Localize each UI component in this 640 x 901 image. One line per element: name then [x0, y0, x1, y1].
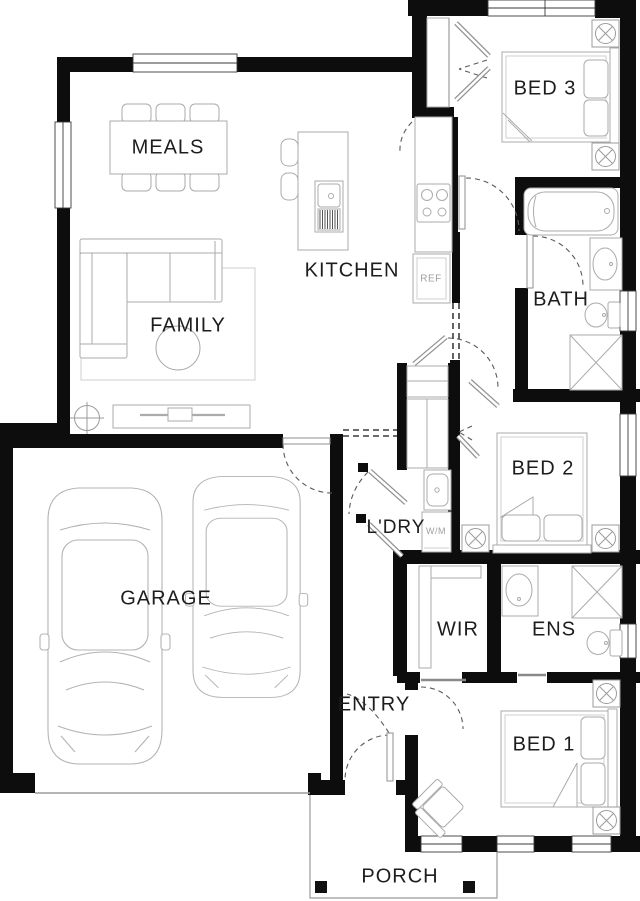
garage-cars: [40, 477, 308, 764]
room-label-wir: WIR: [437, 619, 479, 642]
kitchen-corner-arc: [400, 122, 412, 153]
bath-vanity: [590, 238, 622, 290]
window-bed2-right: [620, 414, 636, 476]
wir-shelves: [419, 566, 481, 668]
dishwasher-hatch: [318, 209, 340, 230]
room-label-laundry: L'DRY: [367, 517, 426, 539]
ens-vanity: [502, 566, 538, 616]
front-door-leaf: [387, 733, 393, 781]
garage-house-door-leaf: [283, 438, 330, 444]
ens-toilet: [587, 630, 622, 656]
wir-door-arc: [421, 687, 463, 729]
window-bed1-bottom-1: [421, 836, 462, 852]
room-label-bed1: BED 1: [513, 734, 576, 757]
room-label-family: FAMILY: [150, 315, 226, 338]
porch-post: [315, 881, 327, 893]
room-label-bed2: BED 2: [512, 458, 575, 481]
room-label-entry: ENTRY: [338, 694, 410, 717]
fridge-label: REF: [420, 274, 442, 285]
bed3-robe: [427, 18, 449, 107]
room-label-garage: GARAGE: [120, 588, 212, 611]
bath-door-leaf: [527, 233, 533, 288]
room-label-bath: BATH: [533, 289, 589, 312]
room-label-bed3: BED 3: [514, 78, 577, 101]
room-label-porch: PORCH: [361, 866, 438, 889]
ceiling-fan-symbol: [70, 402, 104, 434]
bed1-bed: [501, 709, 617, 809]
laundry-trough: [424, 470, 451, 510]
window-bed3-top: [488, 0, 595, 16]
bath-door-arc: [533, 236, 583, 286]
window-bath-right: [620, 291, 636, 331]
window-meals-left: [55, 122, 71, 208]
bed3-door-arc: [466, 178, 519, 231]
tv-unit: [113, 405, 250, 428]
porch-post: [463, 881, 475, 893]
room-label-kitchen: KITCHEN: [305, 260, 400, 283]
floor-plan-drawing: [0, 0, 640, 901]
ens-shower: [572, 566, 622, 618]
cooktop: [417, 184, 450, 222]
floor-plan-page: MEALS KITCHEN FAMILY BED 3 BATH BED 2 L'…: [0, 0, 640, 901]
laundry-door-arc: [349, 472, 368, 514]
bath-toilet: [585, 302, 620, 328]
room-label-ens: ENS: [532, 619, 576, 642]
front-door-arc: [345, 735, 390, 780]
bed3-door-leaf: [459, 176, 465, 229]
washing-machine-label: W/M: [426, 526, 446, 536]
bath-shower: [570, 335, 622, 390]
bar-stools: [281, 139, 298, 200]
bed2-bed: [493, 433, 591, 553]
window-meals-top: [133, 54, 237, 72]
linen-cupboard: [407, 366, 448, 468]
car: [40, 488, 170, 764]
bathtub: [524, 188, 618, 235]
window-bed1-bottom-2: [497, 836, 534, 852]
window-bed1-bottom-3: [572, 836, 611, 852]
room-label-meals: MEALS: [132, 137, 205, 160]
